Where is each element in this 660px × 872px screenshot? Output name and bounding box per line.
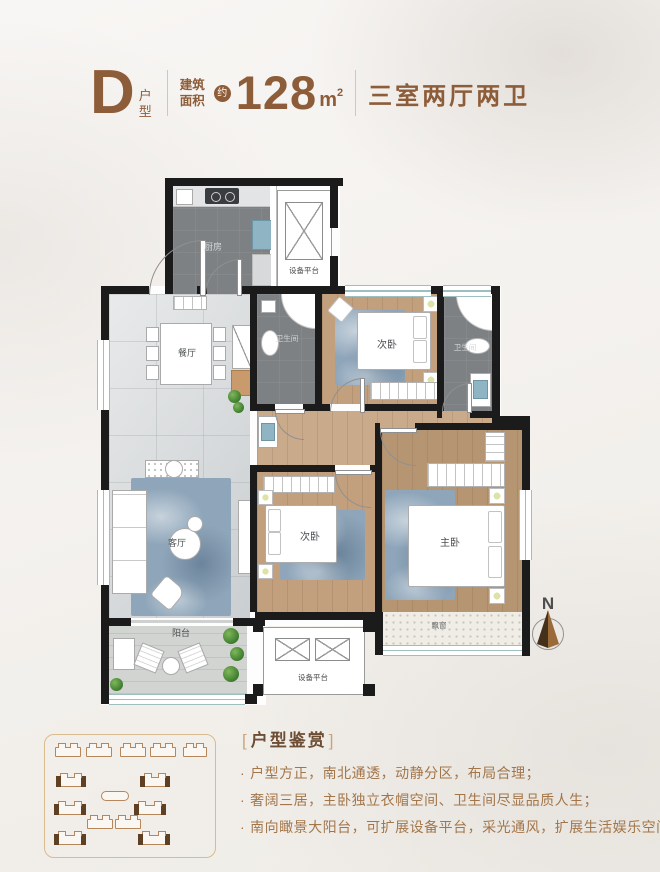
- plant-icon: [110, 678, 123, 691]
- wall: [250, 294, 257, 404]
- site-building-highlighted: [55, 805, 85, 815]
- room-label-bath2: 卫生间: [443, 342, 487, 353]
- plant-icon: [223, 666, 239, 682]
- bath1-door-leaf: [275, 409, 305, 414]
- site-building: [87, 819, 113, 829]
- floor-plan: 厨房 设备平台 餐厅 卫生间 次卧 卫生间 客厅 次卧 主卧 阳台 设备平台 飘…: [85, 160, 530, 715]
- header-divider-2: [355, 70, 356, 116]
- site-building: [115, 819, 141, 829]
- site-building: [86, 747, 112, 757]
- bullet-marker: ·: [240, 765, 245, 781]
- compass-needle-icon: [531, 610, 565, 652]
- wall: [257, 465, 335, 472]
- room-label-bedroom-mid: 次卧: [290, 528, 330, 543]
- shoe-cabinet: [173, 296, 207, 310]
- area-label: 建筑面积: [180, 77, 210, 109]
- feature-bullet-3: ·南向瞰景大阳台，可扩展设备平台，采光通风，扩展生活娱乐空间；: [240, 814, 652, 841]
- wall: [250, 465, 257, 612]
- nightstand-icon: [258, 490, 273, 505]
- wall: [109, 618, 131, 626]
- equipment-bottom-xbox: [275, 638, 310, 661]
- wall: [470, 411, 500, 418]
- bracket-open: [: [242, 731, 249, 750]
- window: [345, 285, 431, 297]
- bullet-marker: ·: [240, 792, 245, 808]
- wall: [375, 612, 383, 655]
- dining-cabinet: [232, 325, 252, 369]
- site-building-highlighted: [141, 777, 169, 787]
- kitchen-sink-counter: [252, 220, 272, 250]
- wall: [242, 286, 342, 294]
- room-label-bay-window: 飘窗: [421, 620, 457, 631]
- pillow-icon: [413, 316, 427, 339]
- bracket-close: ]: [329, 731, 336, 750]
- site-building-highlighted: [55, 835, 85, 845]
- wall: [375, 430, 382, 612]
- approx-badge: 约: [214, 85, 231, 102]
- wall: [253, 684, 263, 696]
- header-divider-1: [167, 70, 168, 116]
- wall: [253, 620, 263, 632]
- floor-lamp-icon: [165, 460, 183, 478]
- feature-bullet-3-text: 南向瞰景大阳台，可扩展设备平台，采光通风，扩展生活娱乐空间；: [250, 819, 660, 835]
- kitchen-sink-small: [176, 189, 193, 205]
- site-building-highlighted: [135, 805, 165, 815]
- wall: [303, 404, 318, 411]
- feature-bullet-2-text: 奢阔三居，主卧独立衣帽空间、卫生间尽显品质人生；: [250, 792, 598, 808]
- balcony-window: [109, 694, 245, 705]
- site-building: [101, 791, 129, 801]
- floorplan-poster: D 户型 建筑面积 约 128 m2 三室两厅两卫: [0, 0, 660, 872]
- site-building-highlighted: [57, 777, 85, 787]
- nightstand-icon: [489, 588, 505, 604]
- wall: [437, 411, 442, 418]
- room-label-dining: 餐厅: [167, 346, 207, 359]
- feature-bullet-2: ·奢阔三居，主卧独立衣帽空间、卫生间尽显品质人生；: [240, 787, 652, 814]
- pillow-icon: [268, 509, 281, 532]
- unit-letter: D: [90, 60, 135, 126]
- bay-window-glass: [383, 645, 522, 656]
- window: [97, 490, 110, 585]
- window: [97, 340, 110, 410]
- wall: [165, 178, 343, 186]
- plant-icon: [233, 402, 244, 413]
- room-label-equipment-top: 设备平台: [275, 265, 333, 276]
- equipment-bottom-xbox-2: [315, 638, 350, 661]
- dining-chair: [146, 365, 159, 380]
- wall: [255, 612, 383, 620]
- wall: [318, 404, 330, 411]
- site-building-highlighted: [139, 835, 169, 845]
- side-table: [187, 516, 203, 532]
- bath2-door-leaf: [467, 383, 472, 413]
- pillow-icon: [488, 546, 502, 578]
- stove-burner-icon-2: [225, 192, 235, 202]
- feature-bullet-1: ·户型方正，南北通透，动静分区，布局合理；: [240, 760, 652, 787]
- master-wardrobe: [427, 463, 505, 487]
- site-building: [55, 747, 81, 757]
- equipment-top-xbox: [285, 202, 323, 260]
- window: [443, 285, 491, 297]
- balcony-cabinet: [113, 638, 135, 670]
- layout-text: 三室两厅两卫: [368, 76, 530, 111]
- bath2-sink: [473, 380, 488, 399]
- bath1-sink: [261, 300, 276, 313]
- room-label-bath1: 卫生间: [265, 333, 309, 344]
- bullet-marker: ·: [240, 819, 245, 835]
- window: [519, 490, 532, 560]
- wall: [330, 178, 338, 228]
- room-label-master: 主卧: [430, 534, 470, 549]
- room-label-balcony: 阳台: [161, 626, 201, 639]
- wall: [363, 684, 375, 696]
- sliding-door-track: [131, 620, 233, 623]
- site-plan: [44, 734, 216, 858]
- plant-icon: [230, 647, 244, 661]
- feature-bullet-1-text: 户型方正，南北通透，动静分区，布局合理；: [250, 765, 540, 781]
- dining-chair: [146, 346, 159, 361]
- dining-chair: [213, 327, 226, 342]
- master-closet: [485, 432, 505, 462]
- area-value: 128: [236, 68, 317, 118]
- bedroom-top-door-leaf: [360, 378, 365, 413]
- master-door-leaf: [380, 428, 417, 433]
- room-label-equipment-bottom: 设备平台: [273, 672, 353, 683]
- wall: [363, 404, 437, 411]
- dining-chair: [213, 365, 226, 380]
- pillow-icon: [488, 511, 502, 543]
- dining-chair: [146, 327, 159, 342]
- features-section: [户型鉴赏] ·户型方正，南北通透，动静分区，布局合理； ·奢阔三居，主卧独立衣…: [240, 726, 652, 841]
- site-building: [120, 747, 146, 757]
- dining-chair: [213, 346, 226, 361]
- kitchen-door-leaf: [237, 259, 242, 296]
- room-label-bedroom-top: 次卧: [367, 336, 407, 351]
- wall: [492, 286, 500, 418]
- kitchen-cabinet: [252, 254, 272, 286]
- plant-icon: [223, 628, 239, 644]
- area-unit: m2: [319, 89, 343, 112]
- sofa: [112, 490, 147, 594]
- wardrobe-mid-bedroom: [263, 476, 335, 493]
- wardrobe-top-bedroom: [370, 382, 438, 400]
- pillow-icon: [413, 340, 427, 363]
- pillow-icon: [268, 532, 281, 555]
- room-label-living: 客厅: [157, 536, 197, 549]
- wall: [363, 620, 375, 632]
- area-unit-exp: 2: [337, 87, 343, 99]
- features-title-text: 户型鉴赏: [251, 731, 327, 750]
- wall: [315, 294, 322, 404]
- nightstand-icon: [489, 488, 505, 504]
- hall-sink: [261, 423, 275, 441]
- room-label-kitchen: 厨房: [193, 240, 233, 253]
- features-title: [户型鉴赏]: [240, 726, 652, 751]
- header: D 户型 建筑面积 约 128 m2 三室两厅两卫: [90, 58, 530, 128]
- unit-type-label: 户型: [139, 88, 155, 120]
- area-unit-m: m: [319, 89, 337, 111]
- bedroom-mid-door-leaf: [335, 470, 372, 475]
- site-building: [183, 747, 207, 757]
- compass: N: [528, 594, 568, 650]
- balcony-table: [162, 657, 180, 675]
- wall: [415, 423, 530, 430]
- stove-burner-icon: [211, 192, 221, 202]
- wall: [250, 404, 275, 411]
- nightstand-icon: [258, 564, 273, 579]
- site-building: [150, 747, 176, 757]
